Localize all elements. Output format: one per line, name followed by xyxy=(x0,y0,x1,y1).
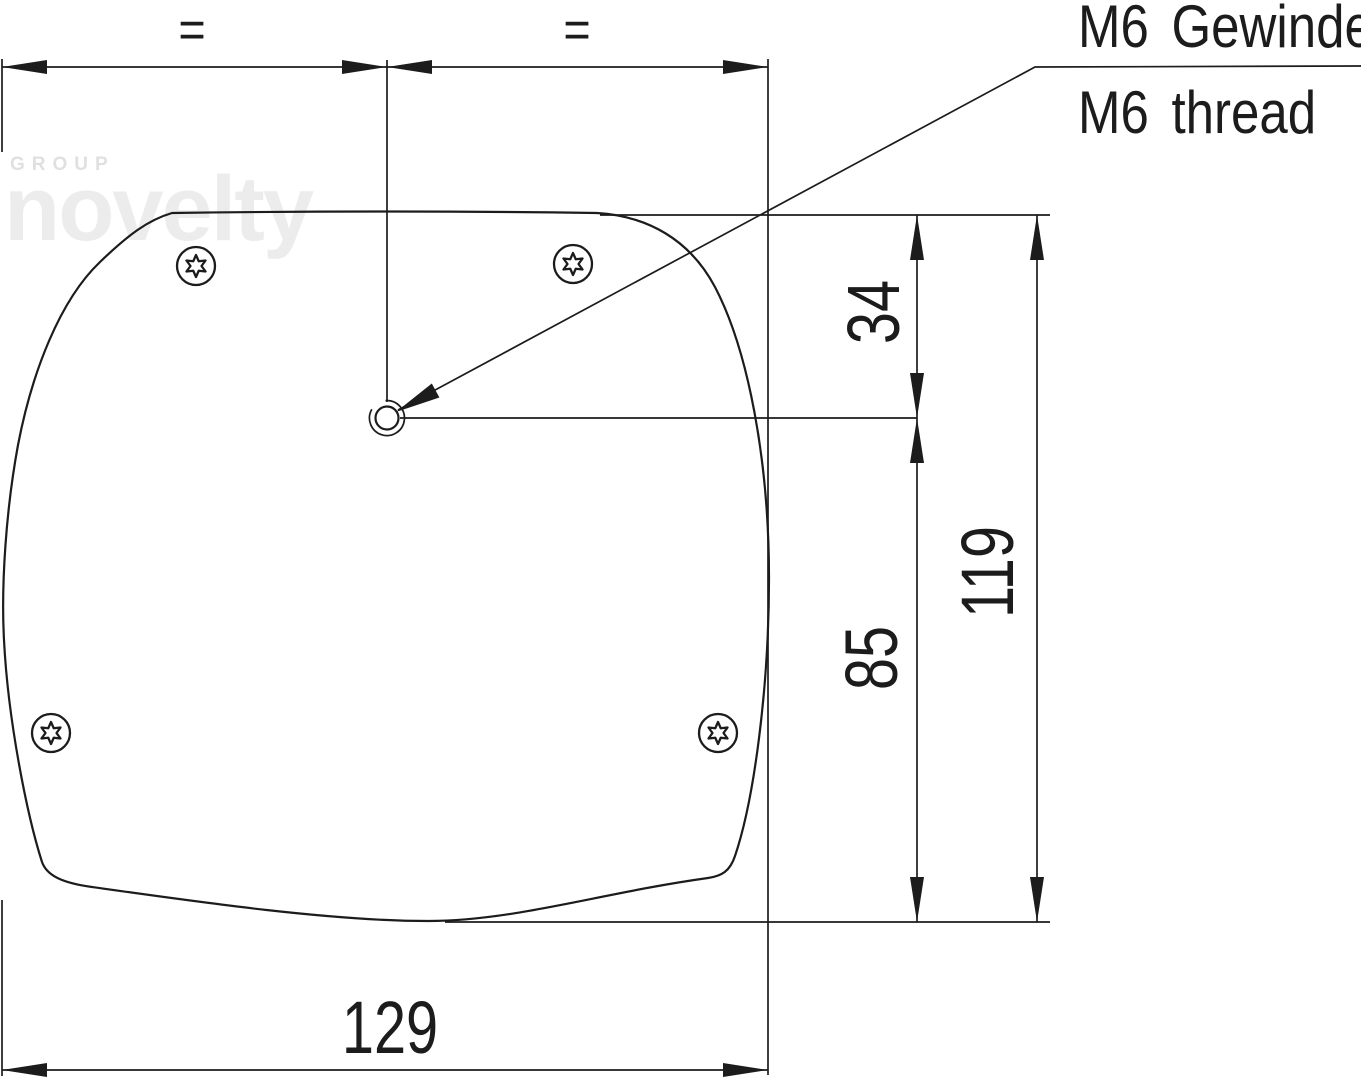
torx-screw-icon-bottom-right xyxy=(699,714,737,752)
callout-text-german: M6 Gewinde xyxy=(1078,0,1361,58)
dim-label-129: 129 xyxy=(342,991,438,1065)
dim-label-119: 119 xyxy=(951,526,1025,618)
threaded-hole-icon xyxy=(369,401,404,436)
drawing-linework xyxy=(0,0,1361,1080)
leader-arrow xyxy=(396,384,439,413)
equal-symbol-right: = xyxy=(563,4,590,56)
torx-screw-icon-bottom-left xyxy=(32,714,70,752)
dim-label-85: 85 xyxy=(835,626,909,690)
torx-screw-icon-top-left xyxy=(177,247,215,285)
equal-symbol-left: = xyxy=(178,4,205,56)
plate-outline xyxy=(3,212,769,922)
dim-label-34: 34 xyxy=(837,280,911,344)
technical-drawing-canvas: GROUP novelty xyxy=(0,0,1361,1080)
callout-text-english: M6 thread xyxy=(1078,82,1316,144)
torx-screw-icon-top-right xyxy=(554,245,592,283)
